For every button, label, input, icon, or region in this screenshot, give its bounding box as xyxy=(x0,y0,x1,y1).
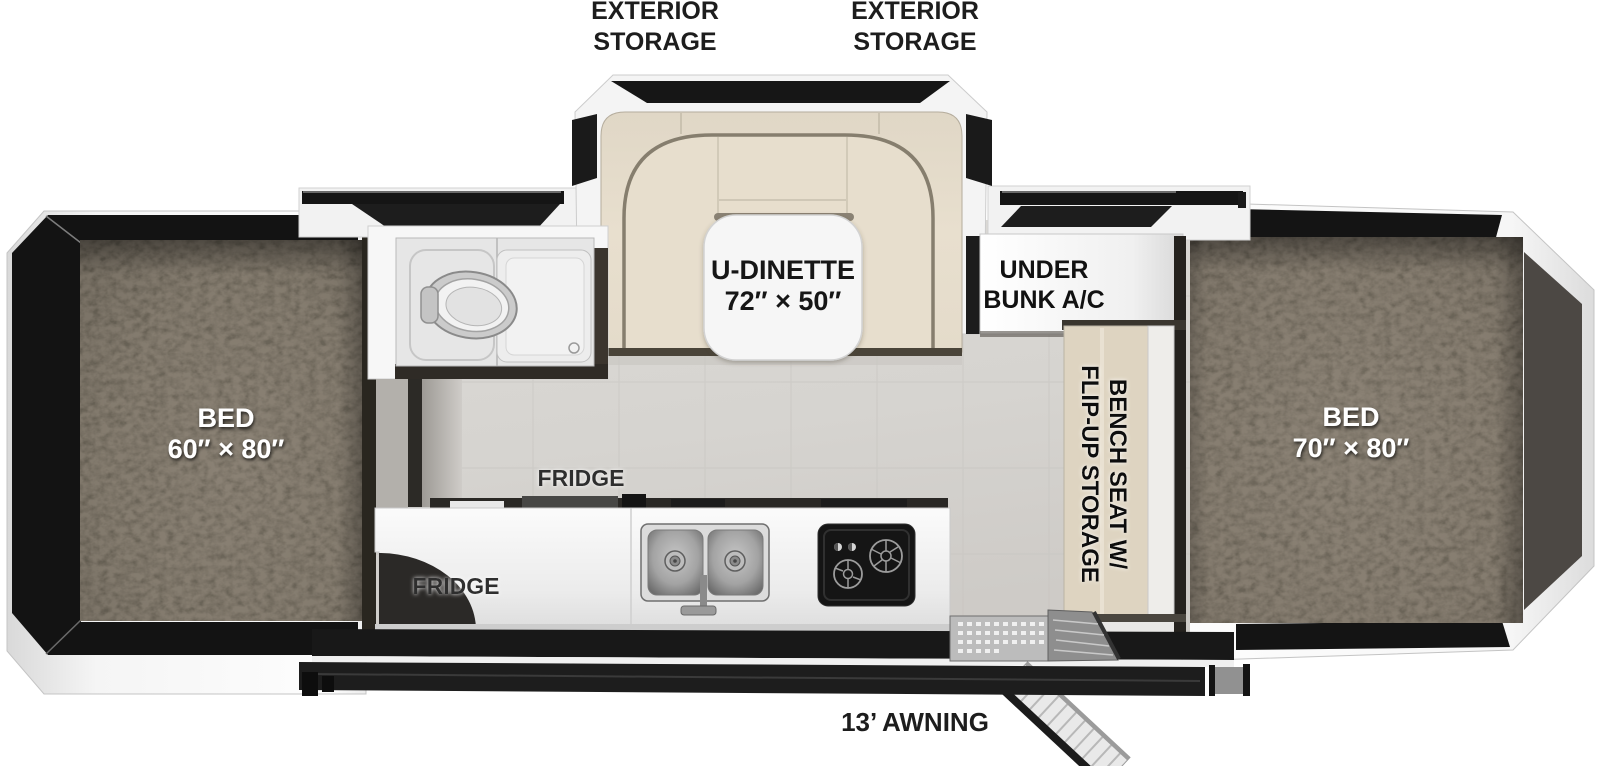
svg-text:70″ × 80″: 70″ × 80″ xyxy=(1293,433,1410,463)
svg-text:13’ AWNING: 13’ AWNING xyxy=(841,707,989,737)
svg-text:STORAGE: STORAGE xyxy=(853,28,976,56)
svg-text:U-DINETTE: U-DINETTE xyxy=(711,255,855,285)
svg-text:UNDER: UNDER xyxy=(1000,256,1089,284)
svg-text:BED: BED xyxy=(197,403,254,433)
svg-text:FRIDGE: FRIDGE xyxy=(538,465,625,491)
svg-text:BED: BED xyxy=(1322,402,1379,432)
svg-text:BUNK A/C: BUNK A/C xyxy=(983,286,1104,314)
svg-text:72″ × 50″: 72″ × 50″ xyxy=(725,286,842,316)
svg-text:STORAGE: STORAGE xyxy=(593,28,716,56)
svg-text:FLIP-UP STORAGE: FLIP-UP STORAGE xyxy=(1076,365,1103,583)
svg-text:EXTERIOR: EXTERIOR xyxy=(851,0,979,25)
svg-text:EXTERIOR: EXTERIOR xyxy=(591,0,719,25)
svg-text:60″ × 80″: 60″ × 80″ xyxy=(168,434,285,464)
svg-text:FRIDGE: FRIDGE xyxy=(413,573,500,599)
svg-text:BENCH SEAT W/: BENCH SEAT W/ xyxy=(1104,379,1131,570)
